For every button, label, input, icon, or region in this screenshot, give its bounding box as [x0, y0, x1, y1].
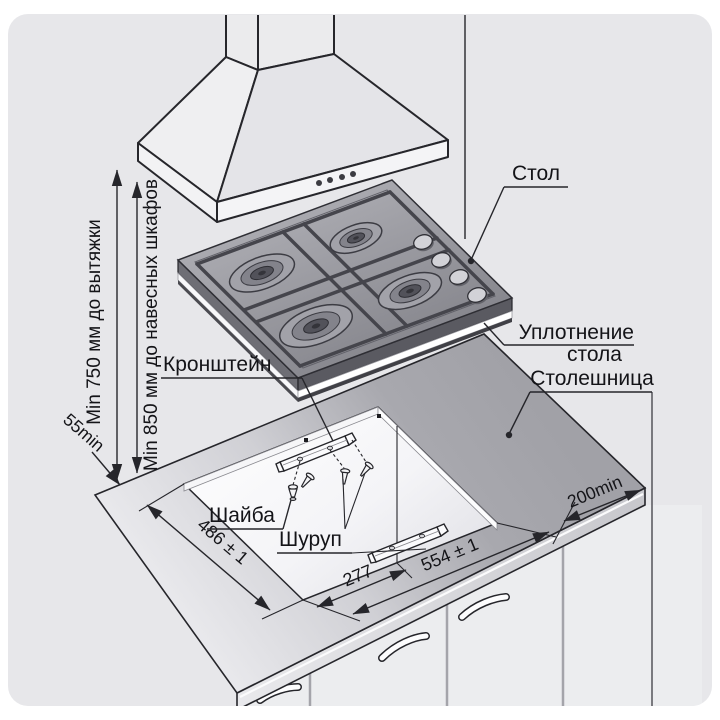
seal-label-line1: Уплотнение	[519, 321, 634, 344]
table-label: Стол	[512, 162, 560, 185]
dim-min-850: Min 850 мм до навесных шкафов	[137, 179, 162, 473]
countertop-label: Столешница	[530, 367, 654, 390]
dim-min-850-label: Min 850 мм до навесных шкафов	[141, 179, 162, 471]
seal-label-line2: стола	[567, 343, 622, 366]
washer-label: Шайба	[209, 504, 275, 527]
hob-installation-diagram: Min 750 мм до вытяжки Min 850 мм до наве…	[0, 0, 720, 720]
screw-position-mark	[304, 438, 308, 442]
leader-dot	[468, 258, 474, 264]
screw-label: Шуруп	[279, 528, 342, 551]
bracket-label: Кронштейн	[163, 353, 271, 376]
installation-diagram-page: Min 750 мм до вытяжки Min 850 мм до наве…	[0, 0, 720, 720]
dim-min-750-label: Min 750 мм до вытяжки	[84, 219, 105, 425]
leader-dot	[506, 432, 512, 438]
screw-position-mark	[377, 414, 381, 418]
